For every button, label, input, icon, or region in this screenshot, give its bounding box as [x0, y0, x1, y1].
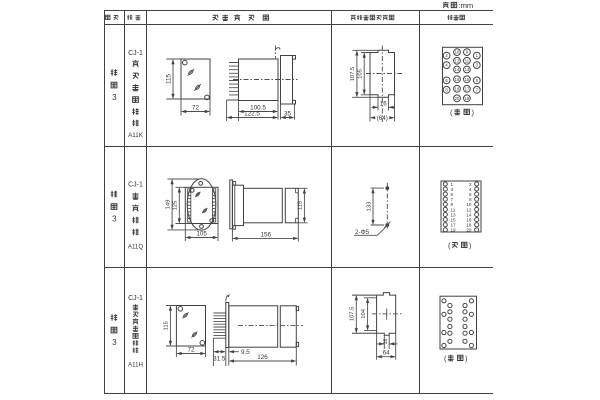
svg-text:3: 3 [112, 93, 117, 102]
svg-text:133: 133 [366, 202, 372, 212]
svg-text:3: 3 [112, 215, 117, 224]
svg-text:115: 115 [166, 73, 173, 84]
svg-text:125: 125 [173, 201, 179, 211]
svg-text:CJ-1: CJ-1 [128, 182, 143, 189]
svg-text:107.5: 107.5 [349, 307, 355, 322]
svg-text:A11H: A11H [128, 362, 143, 369]
svg-text:72: 72 [187, 347, 195, 354]
svg-text:14: 14 [455, 67, 460, 72]
svg-text:105: 105 [357, 69, 363, 79]
svg-text:19: 19 [465, 96, 470, 101]
svg-text:(64): (64) [377, 115, 388, 122]
svg-text:16: 16 [380, 100, 388, 107]
svg-text:A11Q: A11Q [128, 244, 144, 251]
svg-text:CJ-1: CJ-1 [128, 50, 143, 57]
svg-text:2-Φ5: 2-Φ5 [355, 229, 370, 236]
svg-text:A11K: A11K [128, 132, 144, 139]
svg-text:13: 13 [465, 67, 470, 72]
svg-text:16: 16 [455, 77, 460, 82]
svg-text:105: 105 [196, 231, 207, 238]
svg-text:122.5: 122.5 [244, 111, 260, 118]
svg-text:18: 18 [455, 86, 460, 91]
svg-text:72: 72 [192, 105, 200, 112]
svg-text:115: 115 [164, 321, 170, 330]
svg-text:19: 19 [451, 228, 457, 233]
svg-text:10: 10 [455, 50, 460, 55]
svg-text:126: 126 [257, 354, 268, 361]
svg-text:12: 12 [455, 58, 460, 63]
svg-text:107.5: 107.5 [350, 67, 356, 82]
svg-text:149: 149 [165, 200, 171, 210]
svg-text:16: 16 [383, 339, 389, 345]
svg-text:3: 3 [112, 338, 117, 347]
svg-text:CJ-1: CJ-1 [128, 295, 143, 302]
svg-text:17: 17 [465, 86, 470, 91]
svg-text:104: 104 [361, 308, 367, 318]
svg-text:20: 20 [455, 96, 460, 101]
svg-text:9.5: 9.5 [241, 349, 250, 356]
svg-text::mm: :mm [459, 1, 474, 10]
svg-text:11: 11 [465, 58, 470, 63]
svg-text:20: 20 [466, 228, 472, 233]
svg-text:156: 156 [261, 231, 272, 238]
svg-text:115: 115 [298, 201, 304, 210]
svg-text:64: 64 [383, 350, 391, 357]
svg-text:15: 15 [465, 77, 470, 82]
svg-text:35: 35 [284, 110, 292, 117]
svg-text:31.5: 31.5 [213, 356, 226, 363]
